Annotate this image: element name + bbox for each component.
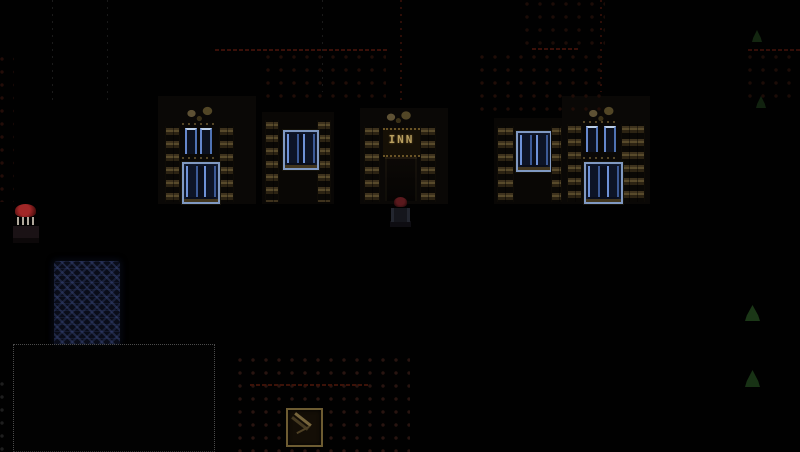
right-house-gable-ornament [585, 103, 618, 122]
street-sign-tile[interactable] [286, 408, 323, 447]
fenced-yard [13, 344, 215, 452]
game-viewport[interactable]: INN [0, 0, 800, 452]
right-small-house-brick-right [551, 126, 562, 202]
fence-posts-left-edge [0, 382, 12, 452]
inn-gable-ornament [383, 110, 415, 123]
wall-seam-dotted-1 [52, 0, 53, 105]
right-house-window-upper [583, 121, 619, 159]
right-house-brick-right [621, 124, 645, 202]
roof-shingles-center [266, 55, 386, 101]
roof-shingles-upper-mid [525, 2, 605, 52]
left-house-gable-ornament [183, 103, 217, 122]
plaza-edge-dotted-line [250, 384, 370, 386]
player-character[interactable] [390, 197, 411, 230]
left-house-brick-right [219, 126, 234, 202]
mid-house-brick-right [317, 120, 331, 202]
left-house-window-lower [182, 162, 220, 204]
inn-door[interactable] [385, 157, 417, 201]
inn-brick-right [420, 126, 436, 202]
wall-seam-dotted-2 [107, 0, 108, 105]
roof-shingles-far-right [748, 55, 800, 101]
bush-right-upper [745, 305, 760, 321]
left-house-window-upper [182, 123, 215, 159]
right-small-house-brick-left [497, 126, 514, 202]
right-small-house-window [516, 131, 552, 172]
right-house-brick-left [567, 124, 582, 202]
bush-right-top [752, 30, 762, 42]
pond [54, 261, 120, 345]
bush-right-lower [745, 370, 760, 387]
inn-brick-left [364, 126, 380, 202]
mid-house-brick-left [265, 120, 279, 202]
roof-eave-line-center [215, 49, 387, 51]
mid-house-window [283, 130, 319, 170]
left-house-brick-left [165, 126, 180, 202]
roof-shingles-left-edge [0, 57, 14, 202]
roof-eave-line-far-right [748, 49, 800, 51]
plaza-tiles [238, 358, 410, 452]
npc-red-cap[interactable] [13, 203, 39, 243]
roof-ridge-dotted-red-1 [400, 0, 402, 105]
right-house-window-lower [584, 162, 623, 204]
inn-sign[interactable]: INN [383, 128, 420, 157]
